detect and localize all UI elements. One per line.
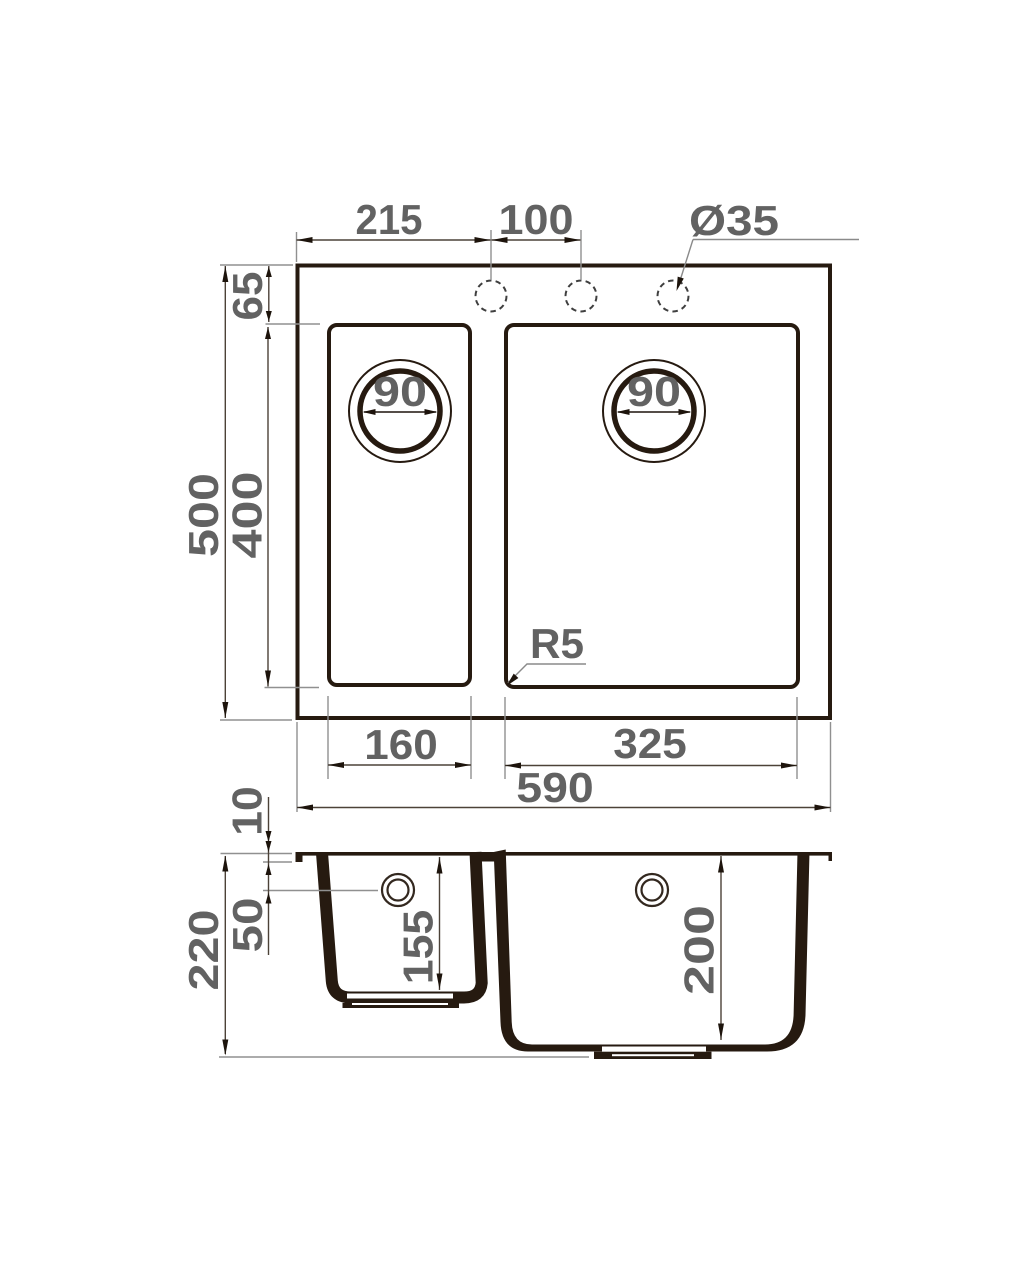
svg-text:400: 400 <box>224 472 271 559</box>
svg-text:220: 220 <box>180 910 227 991</box>
svg-text:Ø35: Ø35 <box>689 197 779 244</box>
svg-text:10: 10 <box>224 786 271 836</box>
svg-text:90: 90 <box>627 368 681 415</box>
svg-text:200: 200 <box>676 905 723 995</box>
svg-text:50: 50 <box>224 898 271 953</box>
svg-text:590: 590 <box>516 764 594 811</box>
svg-text:100: 100 <box>499 196 574 243</box>
svg-text:325: 325 <box>613 720 687 767</box>
svg-text:155: 155 <box>395 910 442 985</box>
svg-text:500: 500 <box>180 473 227 557</box>
svg-text:R5: R5 <box>530 620 584 667</box>
svg-text:215: 215 <box>356 196 423 243</box>
svg-text:90: 90 <box>373 368 427 415</box>
svg-text:160: 160 <box>364 721 438 768</box>
svg-text:65: 65 <box>224 272 271 321</box>
